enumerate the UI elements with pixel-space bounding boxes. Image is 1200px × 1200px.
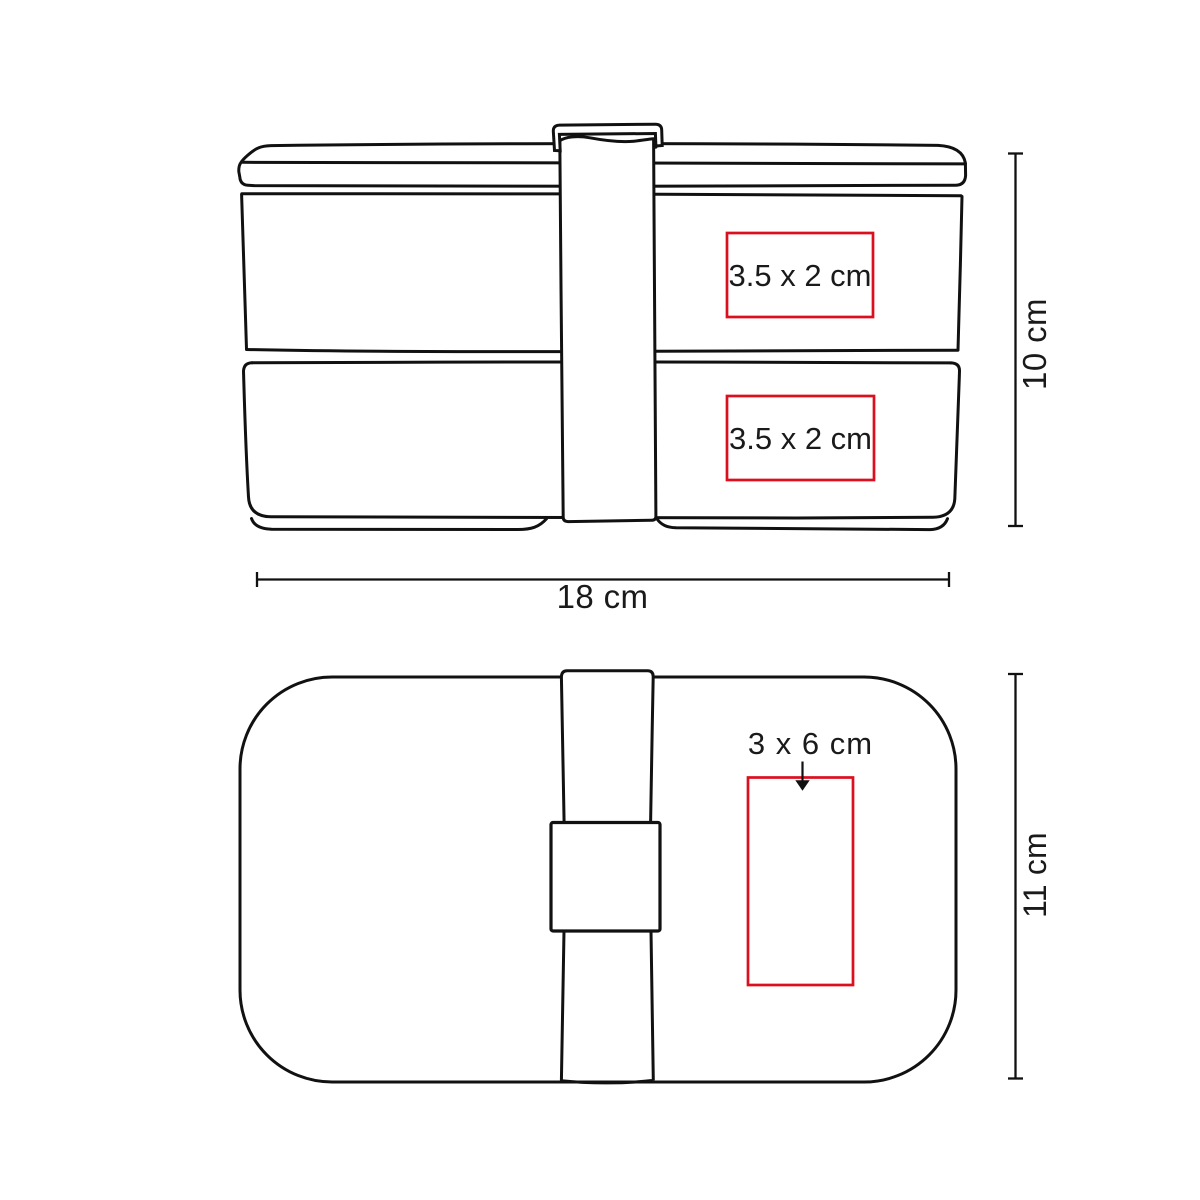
svg-text:11 cm: 11 cm bbox=[1017, 832, 1053, 918]
svg-text:3 x 6 cm: 3 x 6 cm bbox=[748, 726, 873, 761]
svg-text:10 cm: 10 cm bbox=[1016, 298, 1053, 390]
svg-text:3.5 x 2 cm: 3.5 x 2 cm bbox=[729, 258, 872, 293]
svg-text:3.5 x 2 cm: 3.5 x 2 cm bbox=[729, 421, 872, 456]
svg-text:18 cm: 18 cm bbox=[557, 578, 649, 615]
